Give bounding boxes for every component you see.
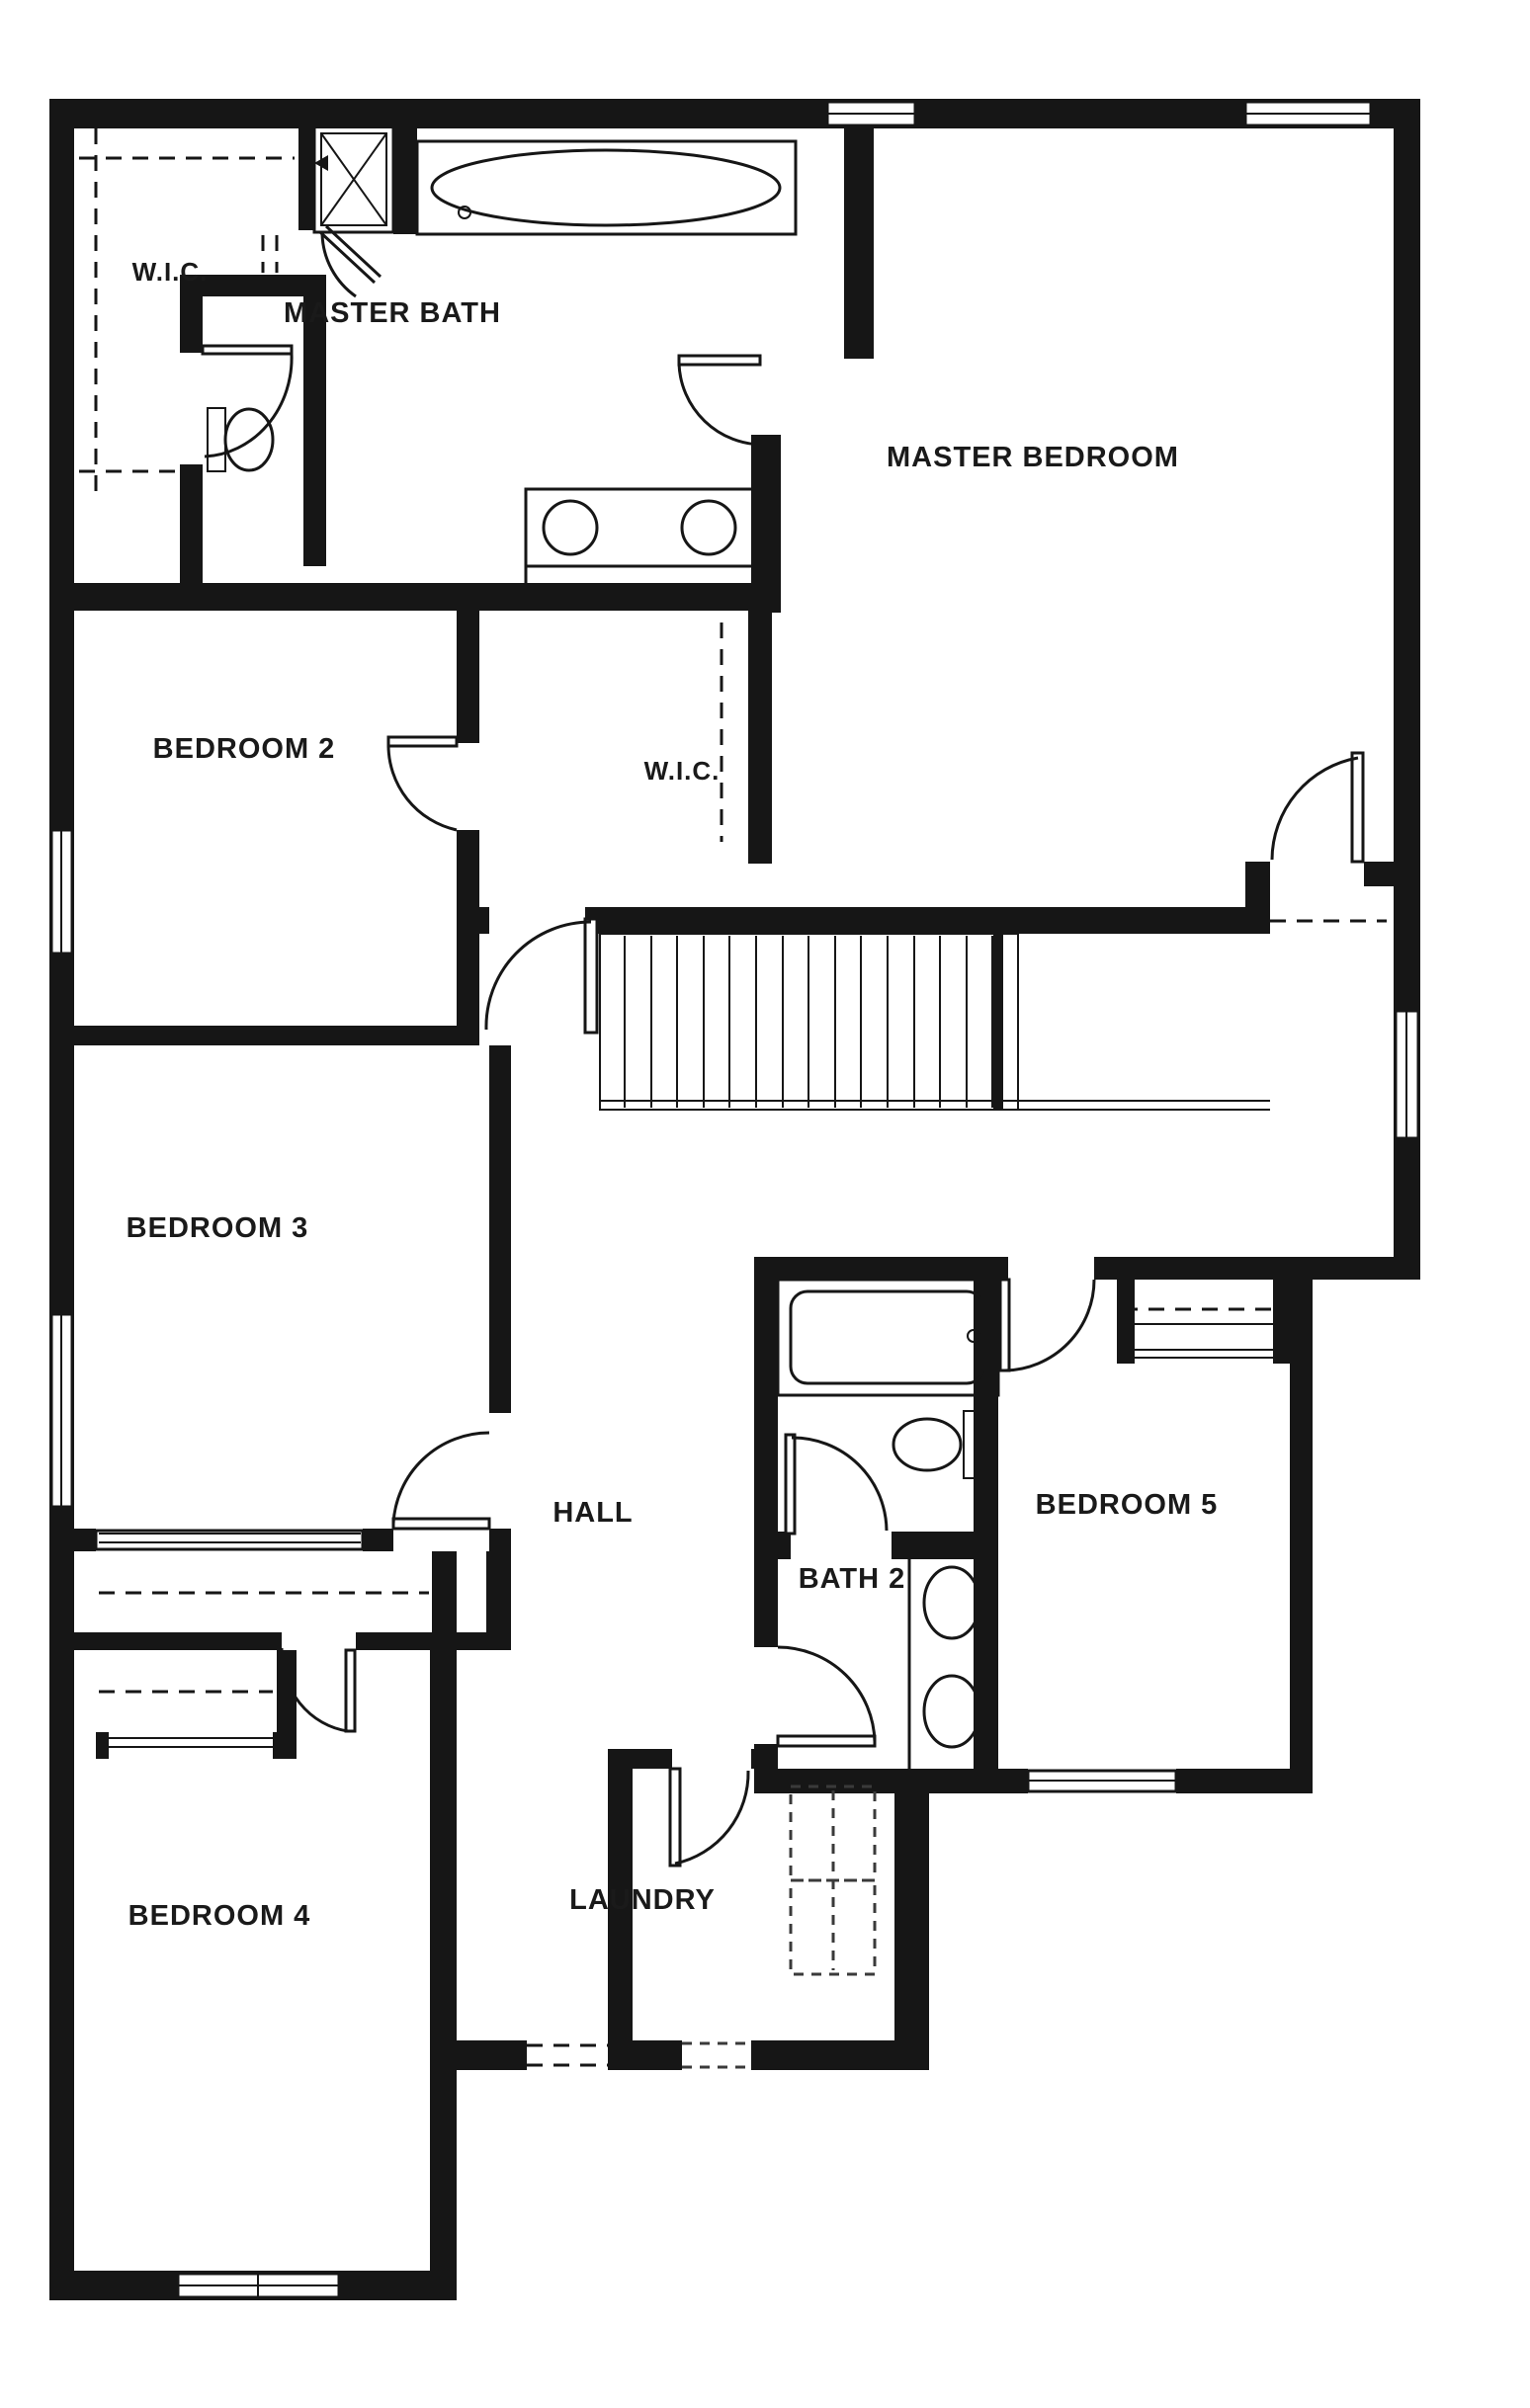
bedroom-4-closet (96, 1692, 297, 1759)
label-bedroom-2: BEDROOM 2 (153, 733, 336, 765)
floor-plan-drawing: W.I.C. MASTER BATH MASTER BEDROOM BEDROO… (0, 0, 1530, 2408)
door-master-bedroom (1270, 753, 1387, 921)
door-shower (320, 226, 381, 296)
shower-icon (314, 126, 393, 232)
exterior-walls (49, 99, 1420, 2300)
door-wic-2 (388, 737, 457, 830)
label-master-bath: MASTER BATH (284, 297, 501, 329)
doors (203, 226, 1387, 1866)
window-bedroom-2 (51, 830, 72, 954)
window-bedroom-4 (178, 2274, 339, 2297)
window-bedroom-5 (1028, 1771, 1176, 1791)
windows (51, 102, 1418, 2297)
door-bedroom-5 (1000, 1280, 1094, 1370)
label-bedroom-5: BEDROOM 5 (1036, 1489, 1219, 1521)
door-laundry (670, 1769, 748, 1866)
label-bath-2: BATH 2 (799, 1563, 906, 1595)
window-master-bedroom-1 (827, 102, 915, 125)
label-bedroom-3: BEDROOM 3 (127, 1212, 309, 1244)
washer-dryer-icon (791, 1786, 875, 1974)
door-bath-2-entry (778, 1647, 875, 1746)
window-master-bedroom-2 (1245, 102, 1371, 125)
label-master-bedroom: MASTER BEDROOM (887, 442, 1179, 473)
window-landing-right (1396, 1011, 1418, 1138)
master-double-vanity-icon (526, 489, 751, 583)
label-bedroom-4: BEDROOM 4 (128, 1900, 311, 1932)
door-master-toilet-room (203, 346, 292, 457)
bath2-tub-icon (778, 1280, 998, 1395)
label-wic-2: W.I.C. (644, 756, 721, 786)
door-bedroom-2 (486, 919, 597, 1033)
door-bath-2-inner (786, 1435, 887, 1534)
floor-plan-page: W.I.C. MASTER BATH MASTER BEDROOM BEDROO… (0, 0, 1530, 2408)
door-master-bath (679, 356, 763, 445)
door-bedroom-3 (393, 1433, 489, 1529)
staircase (600, 934, 1270, 1110)
label-wic-master: W.I.C. (132, 257, 209, 287)
label-hall: HALL (552, 1497, 633, 1529)
label-laundry: LAUNDRY (569, 1884, 716, 1916)
master-toilet-icon (208, 408, 273, 471)
garden-tub-icon (417, 141, 796, 234)
bedroom-5-closet (1122, 1309, 1285, 1358)
window-bedroom-3 (51, 1314, 72, 1507)
